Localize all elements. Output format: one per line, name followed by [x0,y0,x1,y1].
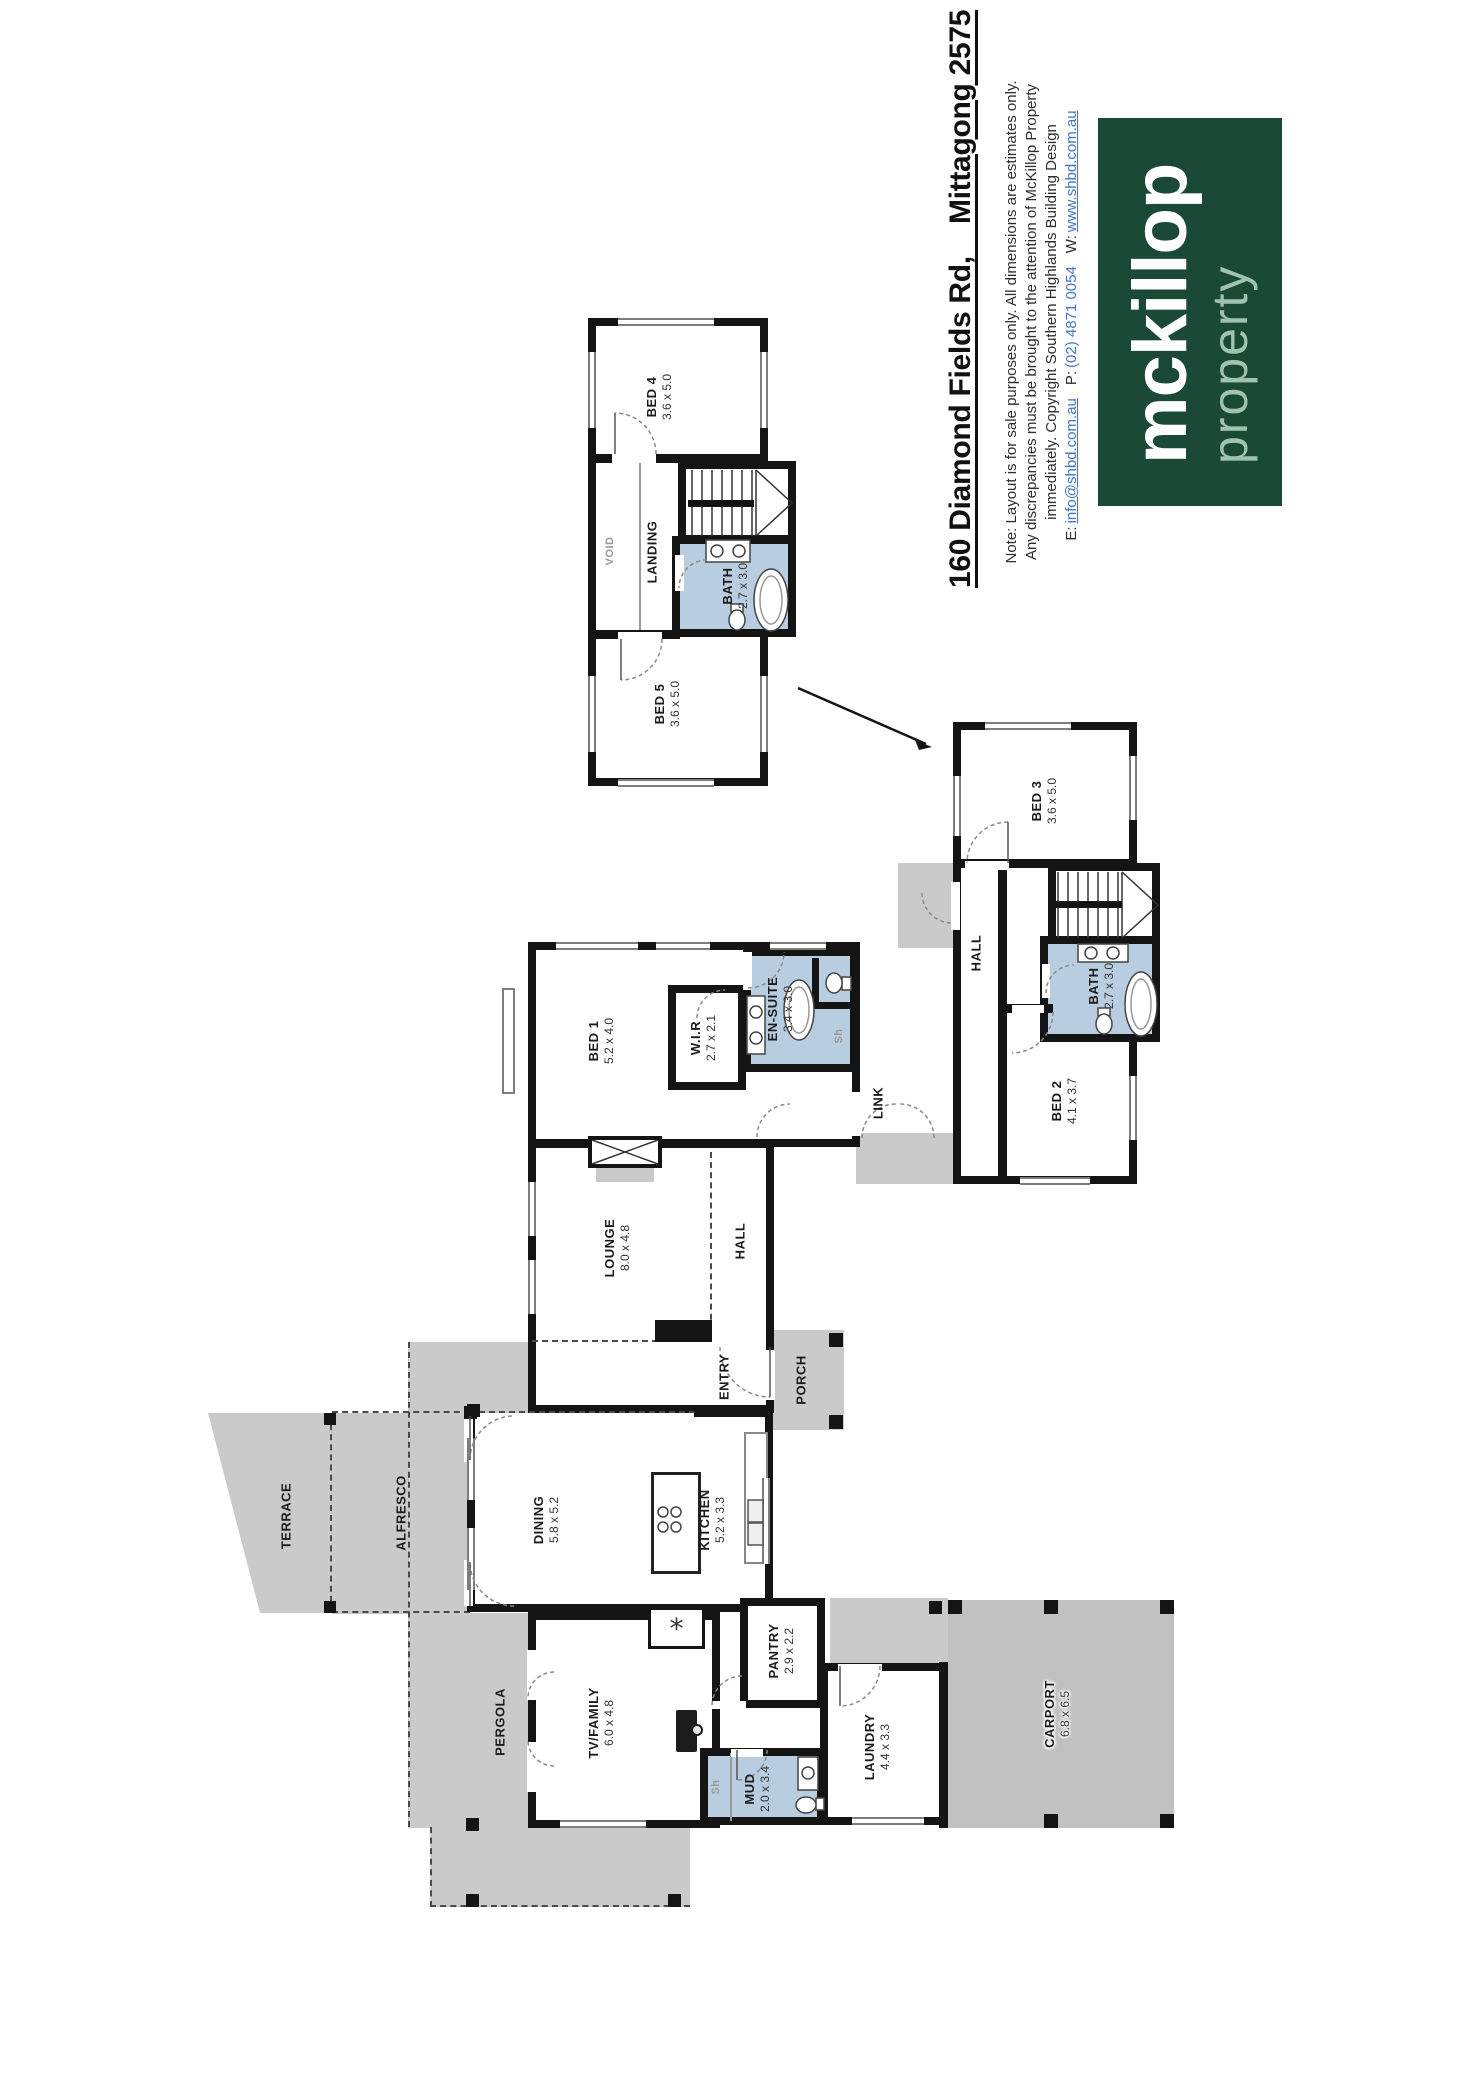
label-mud: MUD2.0 x 3.4 [742,1766,772,1812]
sink-icon [748,1500,763,1545]
fireplace-icon: * [648,1607,705,1649]
label-lounge: LOUNGE8.0 x 4.8 [602,1219,632,1278]
label-dining: DINING5.8 x 5.2 [531,1496,561,1545]
label-bed1: BED 15.2 x 4.0 [586,1018,616,1064]
label-wir: W.I.R2.7 x 2.1 [688,1015,718,1061]
label-bath-wing: BATH2.7 x 3.0 [1086,963,1116,1009]
label-bed5: BED 53.6 x 5.0 [652,681,682,727]
fireplace-symbol: * [651,1610,702,1646]
label-void: VOID [604,537,616,566]
cooktop-icon [658,1507,681,1532]
stair-rail [688,500,754,507]
label-hall-main: HALL [733,1223,748,1260]
label-shower-mud: Sh [710,1779,722,1794]
label-porch: PORCH [794,1355,809,1404]
label-hall-wing: HALL [969,935,984,972]
fireplace-x [592,1140,658,1164]
label-landing: LANDING [645,521,660,584]
mud-fixtures [796,1757,824,1813]
label-carport: CARPORT6.8 x 6.5 [1042,1680,1072,1748]
label-pantry: PANTRY2.9 x 2.2 [766,1624,796,1679]
label-link: LINK [871,1087,886,1119]
label-bed2: BED 24.1 x 3.7 [1049,1078,1079,1124]
label-entry: ENTRY [717,1354,732,1400]
label-ensuite: EN-SUITE3.4 x 3.0 [765,977,795,1042]
label-kitchen: KITCHEN5.2 x 3.3 [697,1489,727,1550]
label-laundry: LAUNDRY4.4 x 3.3 [862,1714,892,1781]
floor-plan-page: 160 Diamond Fields Rd, Mittagong 2575 No… [0,0,1472,2082]
label-bath-upper: BATH2.7 x 3.0 [720,563,750,609]
plan-detail-overlay [0,0,1472,2082]
label-shower-ensuite: Sh [833,1028,845,1043]
wood-heater-icon [676,1710,697,1752]
level-link-arrow [798,688,932,750]
stair-rail [1054,901,1122,908]
label-pergola: PERGOLA [493,1688,508,1756]
label-alfresco: ALFRESCO [394,1475,409,1551]
label-terrace: TERRACE [279,1483,294,1549]
label-tv-family: TV/FAMILY6.0 x 4.8 [586,1687,616,1758]
label-bed3: BED 33.6 x 5.0 [1029,778,1059,824]
heater-knob [691,1724,703,1736]
label-bed4: BED 43.6 x 5.0 [644,374,674,420]
